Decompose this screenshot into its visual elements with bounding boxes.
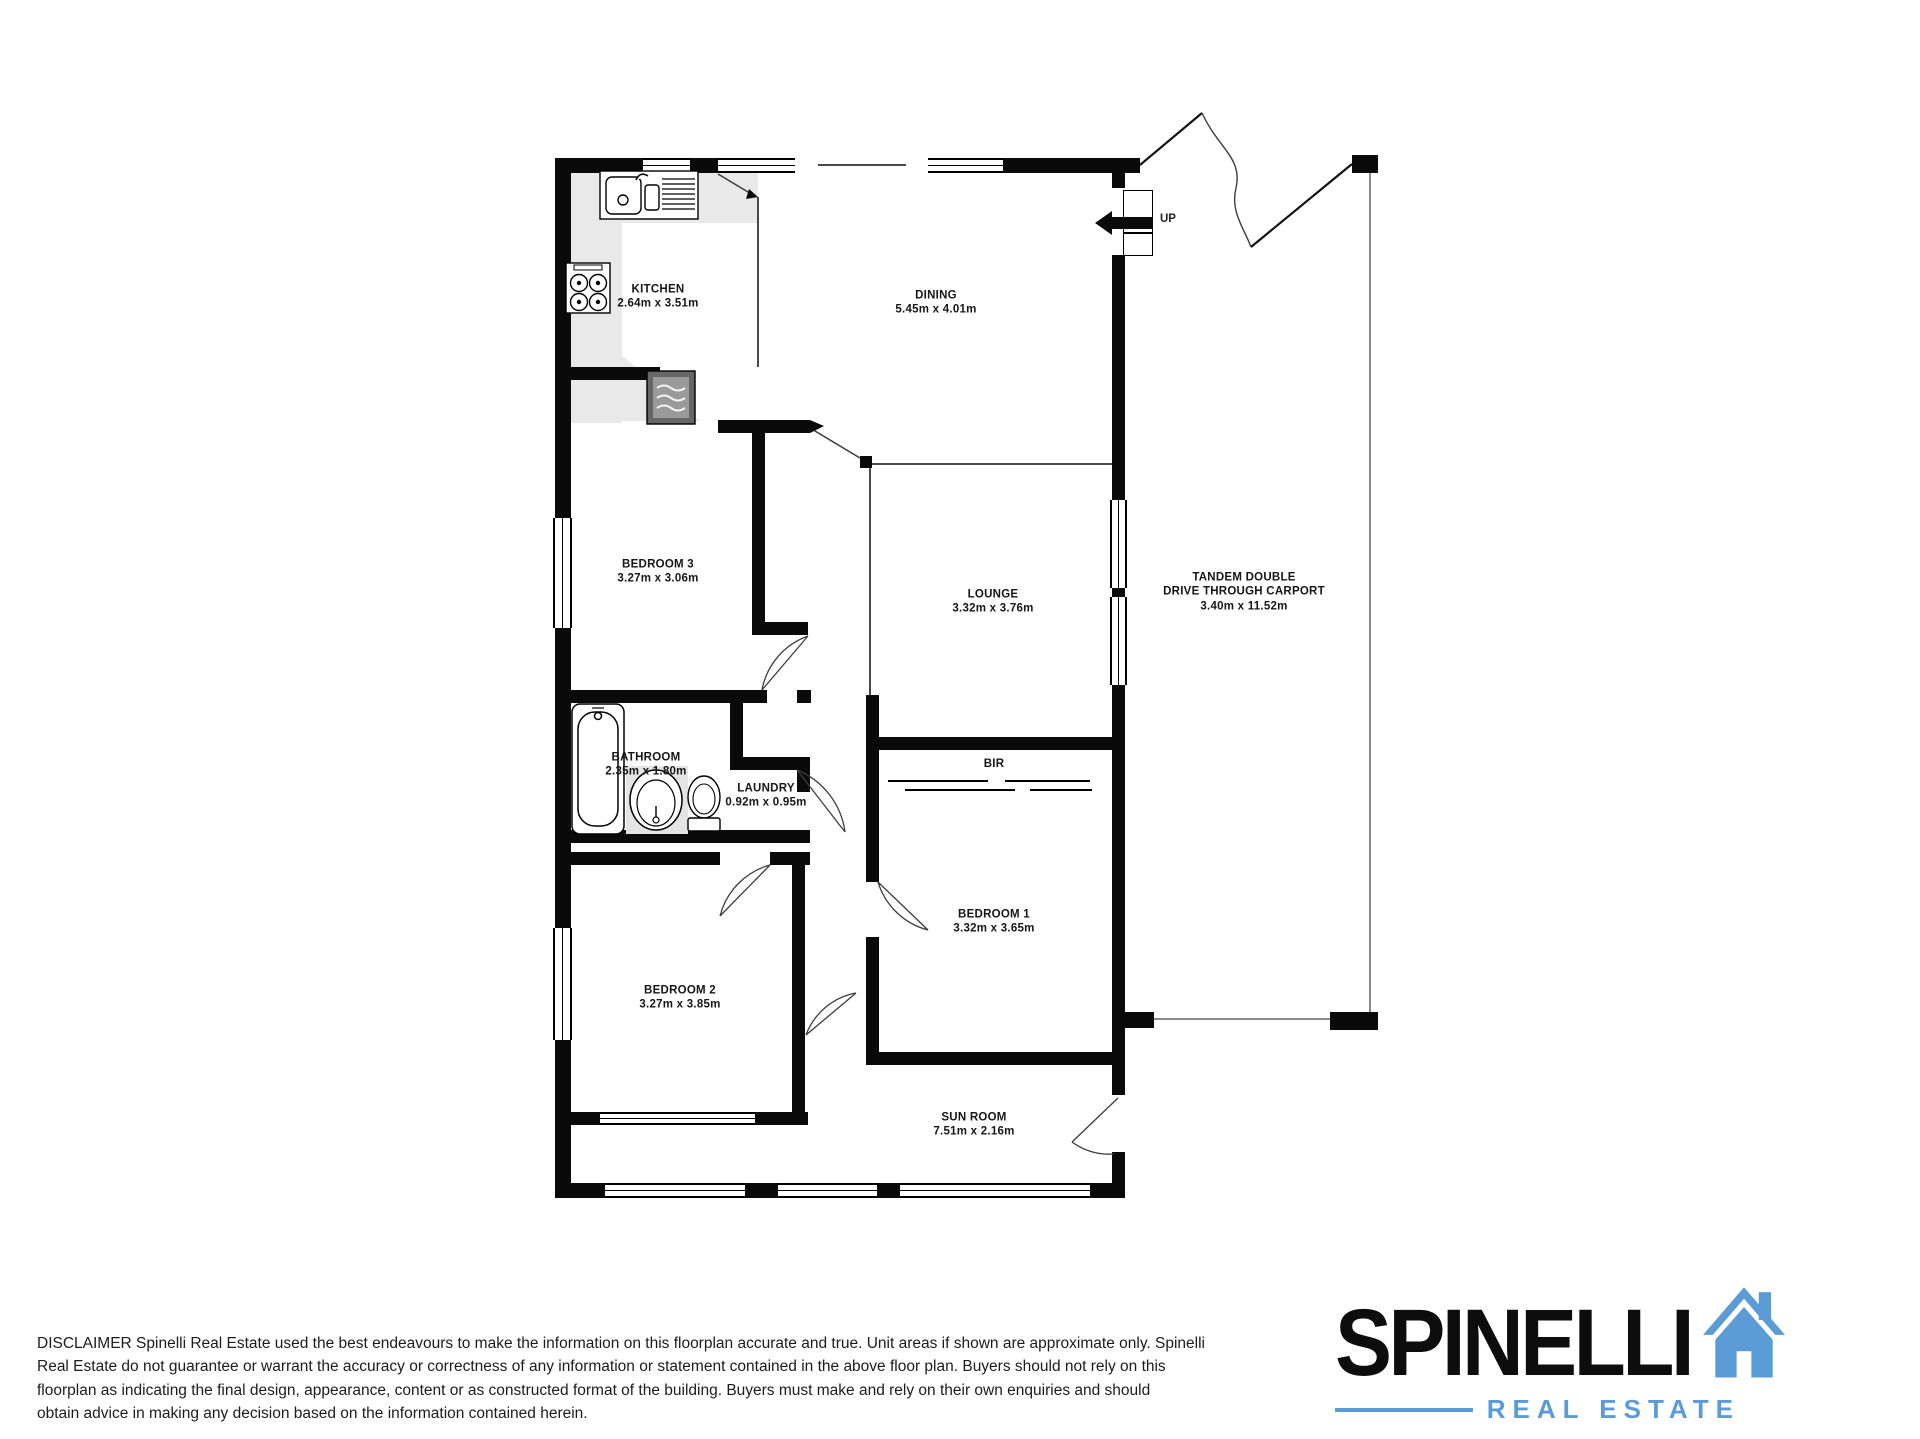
room-label-bedroom3: BEDROOM 33.27m x 3.06m xyxy=(617,558,698,587)
wall xyxy=(866,937,879,1054)
wall xyxy=(1003,158,1140,173)
window xyxy=(1110,597,1127,685)
wall xyxy=(792,865,805,1112)
robe-door-line xyxy=(888,780,988,782)
brand-wordmark: SPINELLI xyxy=(1335,1298,1691,1388)
wall xyxy=(555,158,643,173)
wall xyxy=(555,158,571,1197)
robe-door-line xyxy=(1030,789,1092,791)
room-label-dining: DINING5.45m x 4.01m xyxy=(895,289,976,318)
area-boundary xyxy=(757,197,759,367)
plan-linework xyxy=(0,0,1920,1439)
wall xyxy=(770,852,810,865)
room-label-lounge: LOUNGE3.32m x 3.76m xyxy=(952,588,1033,617)
window xyxy=(643,158,690,173)
window xyxy=(1110,500,1127,588)
brand-logo: SPINELLI REAL ESTATE xyxy=(1335,1280,1813,1425)
kitchen-bench-corner xyxy=(571,355,700,421)
window xyxy=(605,1183,745,1198)
wall xyxy=(555,830,810,843)
stair-up-label: UP xyxy=(1160,213,1176,225)
window xyxy=(718,158,795,173)
wall xyxy=(752,622,808,635)
wall xyxy=(877,1183,900,1198)
wall xyxy=(1112,172,1125,188)
room-label-laundry: LAUNDRY0.92m x 0.95m xyxy=(725,782,806,811)
disclaimer-text: DISCLAIMER Spinelli Real Estate used the… xyxy=(37,1332,1299,1425)
floorplan-page: { "floorplan": { "rooms": [ {"name": "KI… xyxy=(0,0,1920,1439)
wall xyxy=(1112,255,1125,500)
room-label-kitchen: KITCHEN2.64m x 3.51m xyxy=(617,283,698,312)
window xyxy=(600,1112,755,1125)
wall xyxy=(1090,1183,1125,1198)
up-arrow-head xyxy=(1095,211,1112,235)
wall-post xyxy=(797,690,811,703)
wall xyxy=(1112,1012,1154,1028)
brand-tagline: REAL ESTATE xyxy=(1487,1394,1740,1425)
room-label-carport: TANDEM DOUBLE DRIVE THROUGH CARPORT3.40m… xyxy=(1163,570,1325,613)
window xyxy=(553,928,572,1040)
room-label-bathroom: BATHROOM2.35m x 1.80m xyxy=(605,751,686,780)
wall xyxy=(1112,685,1125,1095)
wall xyxy=(718,420,810,433)
window xyxy=(778,1183,877,1198)
carport-edge xyxy=(1154,1018,1330,1020)
wall xyxy=(690,158,718,173)
robe-door-line xyxy=(1005,780,1090,782)
wall xyxy=(555,852,720,865)
up-arrow xyxy=(1112,217,1153,229)
wall xyxy=(555,1112,600,1125)
wall xyxy=(1112,588,1125,597)
wall-tip xyxy=(810,420,824,433)
carport-post xyxy=(1352,155,1378,173)
window xyxy=(553,518,572,628)
window xyxy=(900,1183,1090,1198)
wall xyxy=(755,1112,808,1125)
area-boundary xyxy=(869,463,871,695)
carport-edge xyxy=(1369,173,1371,1019)
room-label-sunroom: SUN ROOM7.51m x 2.16m xyxy=(933,1111,1014,1140)
room-label-bedroom1: BEDROOM 13.32m x 3.65m xyxy=(953,908,1034,937)
wall xyxy=(555,1183,605,1198)
room-label-bedroom2: BEDROOM 23.27m x 3.85m xyxy=(639,984,720,1013)
wall xyxy=(866,695,879,882)
area-boundary xyxy=(870,463,1112,465)
stair-tread xyxy=(1124,232,1152,234)
room-label-bir: BIR xyxy=(984,757,1005,771)
wall xyxy=(1330,1012,1378,1030)
wall xyxy=(752,433,765,625)
window xyxy=(928,158,1003,173)
wall xyxy=(866,1052,1125,1065)
wall xyxy=(555,367,660,380)
opening-line xyxy=(818,164,906,166)
wall-post xyxy=(860,456,872,468)
house-icon xyxy=(1703,1280,1785,1388)
toilet-icon xyxy=(688,776,720,831)
logo-rule xyxy=(1335,1408,1473,1412)
robe-door-line xyxy=(905,789,1015,791)
wall xyxy=(878,737,1112,750)
wall xyxy=(745,1183,778,1198)
